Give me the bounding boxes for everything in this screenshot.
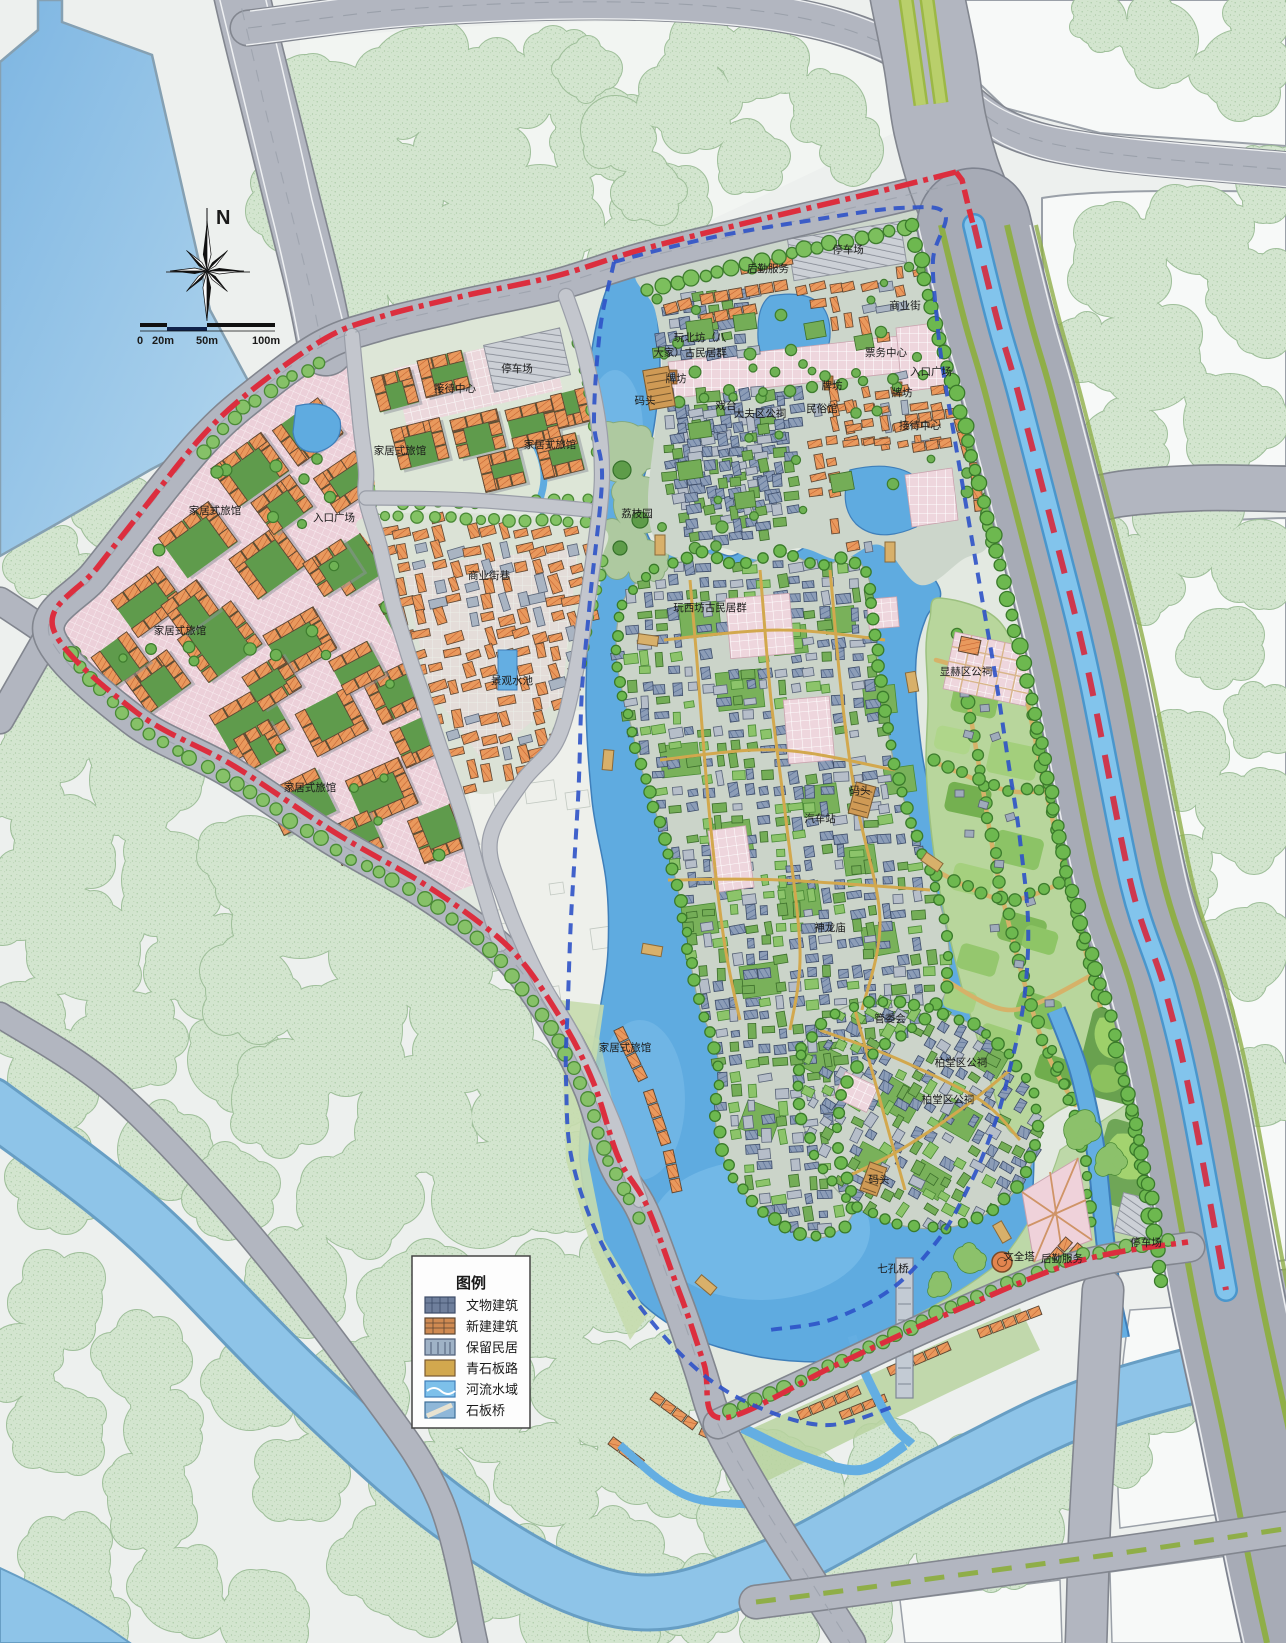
svg-text:玩北坊（八: 玩北坊（八 (674, 331, 727, 344)
svg-text:入口广场: 入口广场 (313, 511, 355, 524)
svg-text:牌坊: 牌坊 (822, 379, 843, 392)
svg-text:大夫区公祠: 大夫区公祠 (734, 407, 787, 420)
svg-text:入口广场: 入口广场 (910, 365, 952, 378)
svg-text:停车场: 停车场 (832, 243, 864, 256)
svg-text:码头: 码头 (869, 1174, 890, 1186)
svg-text:牌坊: 牌坊 (666, 372, 687, 385)
svg-text:新建建筑: 新建建筑 (466, 1319, 518, 1334)
svg-text:后勤服务: 后勤服务 (1041, 1252, 1083, 1265)
svg-text:显赫区公祠: 显赫区公祠 (940, 665, 993, 678)
svg-text:N: N (216, 207, 230, 229)
svg-text:管委会: 管委会 (874, 1012, 906, 1025)
svg-text:0: 0 (137, 335, 143, 347)
svg-text:家居式旅馆: 家居式旅馆 (374, 444, 427, 457)
svg-text:青石板路: 青石板路 (466, 1361, 518, 1376)
svg-text:景观水池: 景观水池 (491, 674, 533, 687)
svg-text:票务中心: 票务中心 (865, 346, 907, 359)
svg-text:家居式旅馆: 家居式旅馆 (524, 438, 577, 451)
svg-text:神龙庙: 神龙庙 (814, 921, 846, 934)
svg-text:20m: 20m (152, 335, 174, 347)
svg-text:家居式旅馆: 家居式旅馆 (599, 1041, 652, 1054)
svg-text:后勤服务: 后勤服务 (747, 262, 789, 275)
svg-text:柏堂区公祠: 柏堂区公祠 (935, 1056, 988, 1069)
svg-text:河流水域: 河流水域 (466, 1382, 518, 1397)
svg-text:家居式旅馆: 家居式旅馆 (284, 781, 337, 794)
svg-text:七孔桥: 七孔桥 (877, 1262, 909, 1275)
svg-text:大家）古民居群: 大家）古民居群 (653, 346, 727, 359)
svg-text:码头: 码头 (635, 395, 656, 407)
svg-text:接待中心: 接待中心 (899, 419, 941, 432)
svg-text:商业街: 商业街 (889, 299, 921, 312)
svg-text:民俗馆: 民俗馆 (806, 402, 838, 415)
svg-text:文全塔: 文全塔 (1003, 1250, 1035, 1263)
svg-text:停车场: 停车场 (1130, 1236, 1162, 1249)
svg-text:50m: 50m (196, 335, 218, 347)
svg-text:玩西坊古民居群: 玩西坊古民居群 (673, 601, 747, 614)
svg-text:牌坊: 牌坊 (892, 386, 913, 399)
svg-text:100m: 100m (252, 335, 280, 347)
svg-text:图例: 图例 (456, 1274, 486, 1292)
svg-text:家居式旅馆: 家居式旅馆 (189, 504, 242, 517)
svg-text:石板桥: 石板桥 (466, 1403, 505, 1418)
svg-text:停车场: 停车场 (501, 362, 533, 375)
svg-text:柏堂区公祠: 柏堂区公祠 (922, 1093, 975, 1106)
svg-text:商业街巷: 商业街巷 (468, 569, 510, 582)
svg-text:保留民居: 保留民居 (466, 1340, 518, 1355)
svg-text:文物建筑: 文物建筑 (466, 1298, 518, 1313)
svg-text:汽车站: 汽车站 (804, 812, 836, 825)
svg-text:码头: 码头 (850, 785, 871, 797)
svg-text:接待中心: 接待中心 (434, 382, 476, 395)
svg-text:家居式旅馆: 家居式旅馆 (154, 624, 207, 637)
svg-text:荔枝园: 荔枝园 (621, 507, 653, 520)
